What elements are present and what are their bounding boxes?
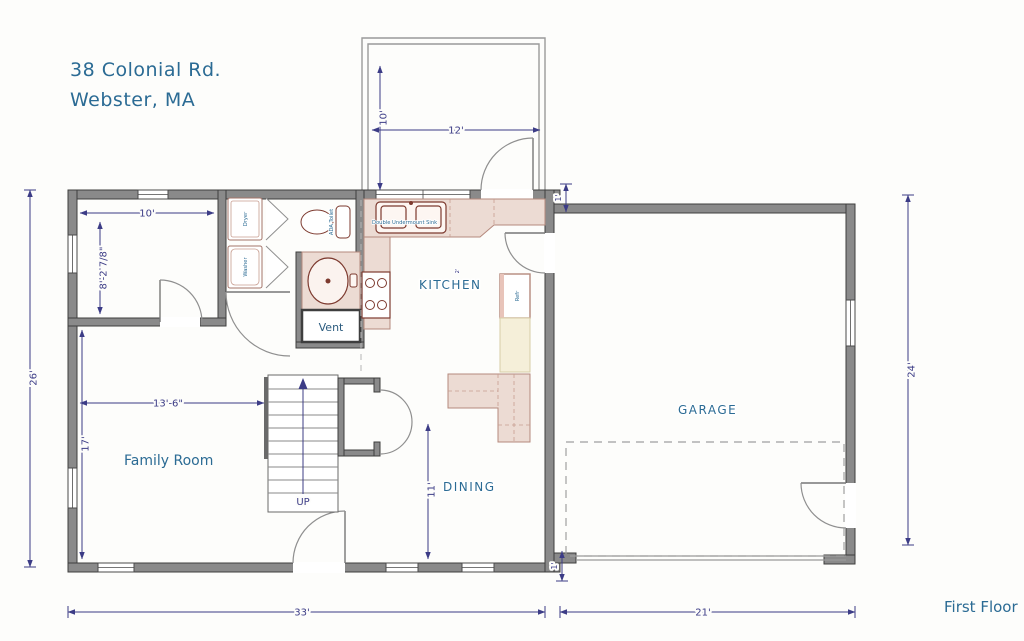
dim-deck-width: 12' <box>448 126 463 137</box>
dim-family-width: 13'-6" <box>153 399 183 410</box>
ada-toilet-label: ADA Toilet <box>329 209 335 235</box>
refrigerator: Refr <box>500 274 530 318</box>
window <box>68 468 77 508</box>
garage-label: GARAGE <box>678 403 737 417</box>
floor-plan-page: Dryer Washer ADA Toilet Vent <box>0 0 1024 641</box>
window <box>138 190 168 199</box>
garage-ceiling-dashed <box>566 442 844 556</box>
wall-office-divider <box>218 190 226 326</box>
front-door <box>293 511 345 563</box>
kitchen-island <box>448 374 530 442</box>
deck-door <box>481 138 533 190</box>
hall-door <box>226 292 290 356</box>
wall-garage-top <box>554 204 855 213</box>
base-cabinet <box>500 318 530 372</box>
dim-office-width: 10' <box>139 209 154 220</box>
first-floor-label: First Floor <box>944 598 1018 616</box>
dryer-label: Dryer <box>243 211 249 226</box>
stair-closet <box>338 378 412 456</box>
family-room-label: Family Room <box>124 453 213 469</box>
sink-label: Double Undermount Sink <box>372 220 437 226</box>
window <box>68 235 77 273</box>
staircase: UP <box>264 375 338 512</box>
washer-label: Washer <box>243 256 249 276</box>
dim-jog-top: 1' <box>554 194 563 201</box>
kitchen-label: KITCHEN <box>419 278 482 292</box>
range-stove <box>362 272 390 318</box>
counter-dim-label: 2' <box>455 269 461 274</box>
dining-label: DINING <box>443 480 496 494</box>
vent-label: Vent <box>319 321 344 334</box>
dim-dining-height: 11' <box>427 482 438 497</box>
dimension-annotations: 10' 12' 10' 8'-2 7/8" 26' 17' 13'-6" 11'… <box>24 66 918 619</box>
dim-family-height: 17' <box>81 436 92 451</box>
wall-office-bottom-left <box>68 318 162 326</box>
half-bath: ADA Toilet Vent <box>301 206 360 342</box>
garage-side-door <box>801 483 846 528</box>
floor-plan-drawing: Dryer Washer ADA Toilet Vent <box>0 0 1024 641</box>
wall-garage-stub-left <box>554 553 576 563</box>
toilet: ADA Toilet <box>301 206 350 238</box>
kitchen-counters: Double Undermount Sink Refr 2' <box>361 199 545 442</box>
window <box>98 563 134 572</box>
laundry-closet: Dryer Washer <box>228 198 288 288</box>
window <box>386 563 418 572</box>
refrigerator-label: Refr <box>515 290 521 301</box>
plan-title: 38 Colonial Rd. <box>70 59 221 81</box>
kitchen-garage-door <box>505 233 545 273</box>
dim-garage-height: 24' <box>907 362 918 377</box>
vent-closet: Vent <box>302 310 360 342</box>
closet-double-door <box>380 422 412 454</box>
closet-double-door <box>380 390 412 422</box>
vanity-sink <box>302 252 360 310</box>
dim-house-width: 33' <box>294 608 309 619</box>
plan-subtitle: Webster, MA <box>70 89 195 111</box>
window <box>376 190 470 199</box>
window <box>462 563 494 572</box>
up-label: UP <box>296 497 309 508</box>
dim-left-height: 26' <box>29 370 40 385</box>
dim-deck-depth: 10' <box>379 110 390 125</box>
office-door <box>160 280 202 322</box>
wall-office-bottom-right <box>200 318 226 326</box>
window <box>846 300 855 346</box>
dim-jog-bottom: 1' <box>550 562 559 569</box>
bifold-door <box>266 198 288 240</box>
bifold-door <box>266 246 288 288</box>
text-labels: 38 Colonial Rd. Webster, MA Family Room … <box>70 59 1018 616</box>
dim-garage-width: 21' <box>695 608 710 619</box>
dim-office-depth: 8'-2 7/8" <box>99 247 110 290</box>
double-sink <box>376 201 446 233</box>
